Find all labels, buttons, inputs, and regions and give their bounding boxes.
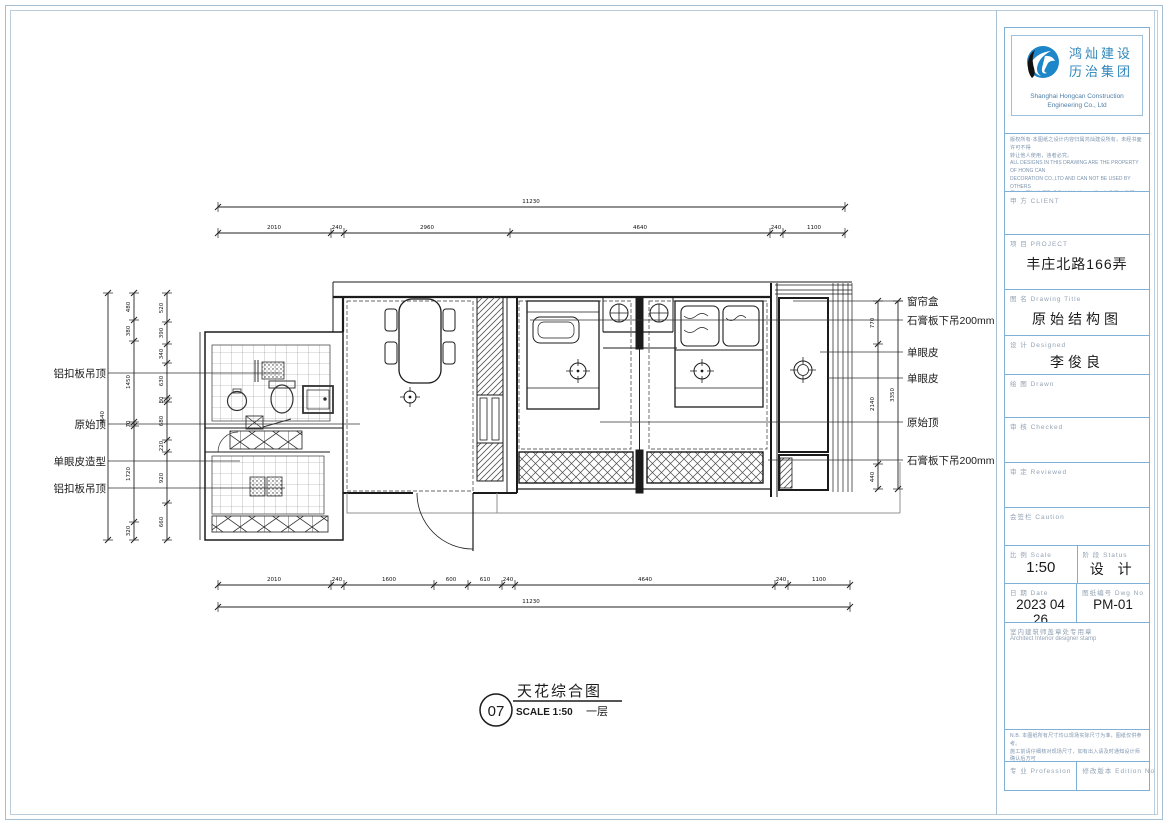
scale-cell: 比 例 Scale 1:50 bbox=[1005, 546, 1077, 583]
date-dwgno-row: 日 期 Date 2023 04 26 图纸编号 Dwg No PM-01 bbox=[1004, 583, 1150, 623]
company-name-en: Shanghai Hongcan Construction Engineerin… bbox=[1015, 92, 1139, 110]
ceiling-edge-dashed bbox=[519, 301, 631, 449]
svg-text:770: 770 bbox=[870, 317, 876, 328]
svg-text:1100: 1100 bbox=[807, 225, 821, 231]
chair bbox=[385, 342, 397, 364]
label-aluminum-ceiling-2: 铝扣板吊顶 bbox=[54, 482, 107, 495]
dining-table bbox=[399, 299, 441, 383]
svg-text:1600: 1600 bbox=[382, 577, 396, 583]
label-eyelid-1: 单眼皮 bbox=[907, 346, 939, 359]
titleblock-separator bbox=[996, 10, 997, 815]
hatched-wall-band bbox=[477, 297, 503, 481]
status-cell: 阶 段 Status 设 计 bbox=[1077, 546, 1150, 583]
closet-downlight-icon bbox=[610, 304, 628, 322]
ceiling-lamp-symbol bbox=[400, 387, 420, 407]
dim-bottom-segments bbox=[215, 580, 853, 590]
svg-text:390: 390 bbox=[159, 327, 165, 338]
ceiling-plan-drawing: 铝扣板吊顶 原始顶 单眼皮造型 铝扣板吊顶 窗帘盒 石膏板下吊200mm 单眼皮… bbox=[0, 0, 996, 825]
svg-text:80: 80 bbox=[159, 396, 165, 403]
project-value: 丰庄北路166弄 bbox=[1010, 254, 1144, 274]
svg-text:1100: 1100 bbox=[812, 577, 826, 583]
label-gypsum-drop-2: 石膏板下吊200mm bbox=[907, 454, 995, 467]
svg-text:340: 340 bbox=[159, 348, 165, 359]
date-cell: 日 期 Date 2023 04 26 bbox=[1005, 584, 1076, 622]
ceiling-lamp-symbol bbox=[566, 359, 590, 383]
bed-1 bbox=[527, 301, 599, 409]
svg-text:630: 630 bbox=[159, 375, 165, 386]
drawing-scale-text: SCALE 1:50 bbox=[516, 707, 573, 718]
entry-door-arc bbox=[417, 493, 473, 549]
drawing-title-value: 原始结构图 bbox=[1010, 309, 1144, 329]
status-value: 设 计 bbox=[1083, 559, 1145, 579]
bed-2 bbox=[675, 301, 763, 407]
stone-counter bbox=[250, 477, 265, 496]
svg-text:520: 520 bbox=[159, 302, 165, 313]
reviewed-section: 审 定 Reviewed bbox=[1004, 462, 1150, 508]
svg-text:11230: 11230 bbox=[522, 199, 540, 205]
company-name-cn: 鸿灿建设 历治集团 bbox=[1069, 45, 1133, 80]
svg-text:680: 680 bbox=[159, 415, 165, 426]
dwgno-value: PM-01 bbox=[1082, 597, 1144, 612]
project-section: 项 目 PROJECT 丰庄北路166弄 bbox=[1004, 234, 1150, 290]
copyright-notes: 版权所有·本图纸之设计内容归属鸿灿建设所有，未经书面许可不得 转让他人使用，违者… bbox=[1004, 133, 1150, 192]
aluminum-ceiling-grid-bath bbox=[212, 345, 330, 421]
title-block: 鸿灿建设 历治集团 Shanghai Hongcan Construction … bbox=[1004, 28, 1150, 791]
svg-text:320: 320 bbox=[126, 525, 132, 536]
profession-cell: 专 业 Profession bbox=[1005, 762, 1076, 790]
label-original-ceiling-right: 原始顶 bbox=[907, 416, 939, 429]
svg-text:600: 600 bbox=[446, 577, 457, 583]
company-logo-icon bbox=[1021, 42, 1063, 84]
svg-text:480: 480 bbox=[126, 301, 132, 312]
svg-text:240: 240 bbox=[776, 577, 787, 583]
svg-text:2140: 2140 bbox=[870, 397, 876, 411]
ceiling-lamp-symbol bbox=[690, 359, 714, 383]
label-eyelid-shape: 单眼皮造型 bbox=[54, 455, 107, 468]
label-aluminum-ceiling-1: 铝扣板吊顶 bbox=[54, 367, 107, 380]
drawing-title-section: 图 名 Drawing Title 原始结构图 bbox=[1004, 289, 1150, 336]
checked-section: 审 核 Checked bbox=[1004, 417, 1150, 463]
svg-text:220: 220 bbox=[159, 440, 165, 451]
label-gypsum-drop-1: 石膏板下吊200mm bbox=[907, 314, 995, 327]
svg-text:920: 920 bbox=[159, 472, 165, 483]
wardrobe-1 bbox=[519, 452, 633, 483]
svg-text:1450: 1450 bbox=[126, 375, 132, 389]
svg-text:4540: 4540 bbox=[100, 411, 106, 425]
chair bbox=[385, 309, 397, 331]
wardrobe-2 bbox=[647, 452, 763, 483]
designed-value: 李俊良 bbox=[1010, 352, 1144, 372]
cabinet-row bbox=[230, 431, 302, 449]
chair bbox=[443, 342, 455, 364]
svg-text:2960: 2960 bbox=[420, 225, 434, 231]
drawing-sheet: 铝扣板吊顶 原始顶 单眼皮造型 铝扣板吊顶 窗帘盒 石膏板下吊200mm 单眼皮… bbox=[0, 0, 1168, 825]
label-curtain-box: 窗帘盒 bbox=[907, 295, 939, 308]
stone-counter bbox=[267, 477, 282, 496]
chair bbox=[443, 309, 455, 331]
edition-cell: 修改版本 Edition No bbox=[1076, 762, 1160, 790]
closet-downlight-icon bbox=[650, 304, 668, 322]
svg-text:240: 240 bbox=[503, 577, 514, 583]
title-index-number: 07 bbox=[488, 703, 505, 720]
svg-text:610: 610 bbox=[480, 577, 491, 583]
scale-status-row: 比 例 Scale 1:50 阶 段 Status 设 计 bbox=[1004, 545, 1150, 584]
svg-text:660: 660 bbox=[159, 516, 165, 527]
balcony bbox=[790, 357, 816, 383]
svg-text:11230: 11230 bbox=[522, 599, 540, 605]
dim-top-segments bbox=[215, 228, 848, 238]
company-logo-section: 鸿灿建设 历治集团 Shanghai Hongcan Construction … bbox=[1004, 27, 1150, 134]
svg-text:2010: 2010 bbox=[267, 577, 281, 583]
bedroom-2 bbox=[647, 301, 767, 483]
svg-text:4640: 4640 bbox=[638, 577, 652, 583]
svg-text:4640: 4640 bbox=[633, 225, 647, 231]
svg-text:3350: 3350 bbox=[890, 388, 896, 402]
designed-section: 设 计 Designed 李俊良 bbox=[1004, 335, 1150, 375]
ceiling-lamp-symbol bbox=[790, 357, 816, 383]
svg-text:440: 440 bbox=[870, 471, 876, 482]
svg-text:2010: 2010 bbox=[267, 225, 281, 231]
caution-section: 会签栏 Caution bbox=[1004, 507, 1150, 546]
drawn-section: 绘 图 Drawn bbox=[1004, 374, 1150, 418]
profession-edition-row: 专 业 Profession 修改版本 Edition No bbox=[1004, 761, 1150, 791]
stamp-section: 室内建筑师盖章处专用章 Architect Interior designer … bbox=[1004, 622, 1150, 730]
scale-value: 1:50 bbox=[1010, 559, 1072, 576]
svg-text:380: 380 bbox=[126, 325, 132, 336]
drawing-title-text: 天花综合图 bbox=[517, 683, 602, 700]
label-eyelid-2: 单眼皮 bbox=[907, 372, 939, 385]
svg-text:240: 240 bbox=[332, 225, 343, 231]
svg-text:1720: 1720 bbox=[126, 467, 132, 481]
titleblock-separator-2 bbox=[1154, 10, 1155, 815]
cabinet-row-bottom bbox=[212, 516, 328, 532]
svg-text:240: 240 bbox=[771, 225, 782, 231]
drawing-title-group: 07 天花综合图 SCALE 1:50 一层 bbox=[480, 683, 622, 726]
svg-text:240: 240 bbox=[332, 577, 343, 583]
drawing-floor-text: 一层 bbox=[586, 705, 608, 718]
svg-text:70: 70 bbox=[126, 420, 132, 427]
dwgno-cell: 图纸编号 Dwg No PM-01 bbox=[1076, 584, 1149, 622]
ceiling-edge-dashed bbox=[649, 301, 767, 449]
bedroom-1 bbox=[519, 301, 633, 483]
client-section: 甲 方 CLIENT bbox=[1004, 191, 1150, 235]
site-notes: N.B. 本图纸所有尺寸均以现场实际尺寸为准，图纸仅供参考。 施工前请仔细核对现… bbox=[1004, 729, 1150, 762]
